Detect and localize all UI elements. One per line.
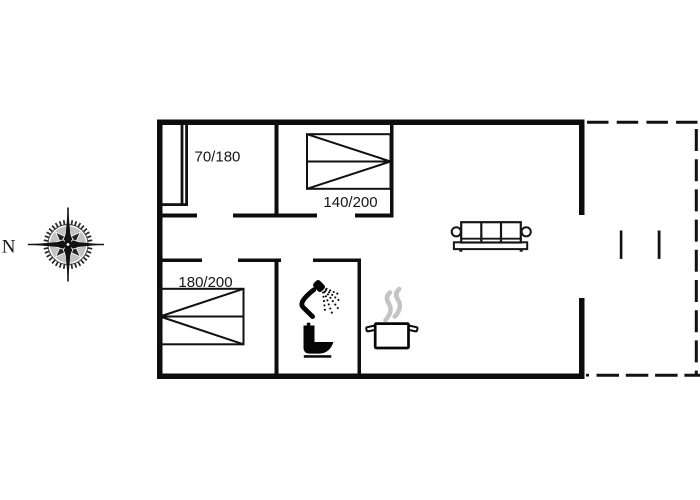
svg-text:140/200: 140/200 xyxy=(323,194,377,211)
svg-text:70/180: 70/180 xyxy=(195,149,241,166)
svg-text:180/200: 180/200 xyxy=(178,274,232,291)
svg-text:N: N xyxy=(2,237,16,258)
